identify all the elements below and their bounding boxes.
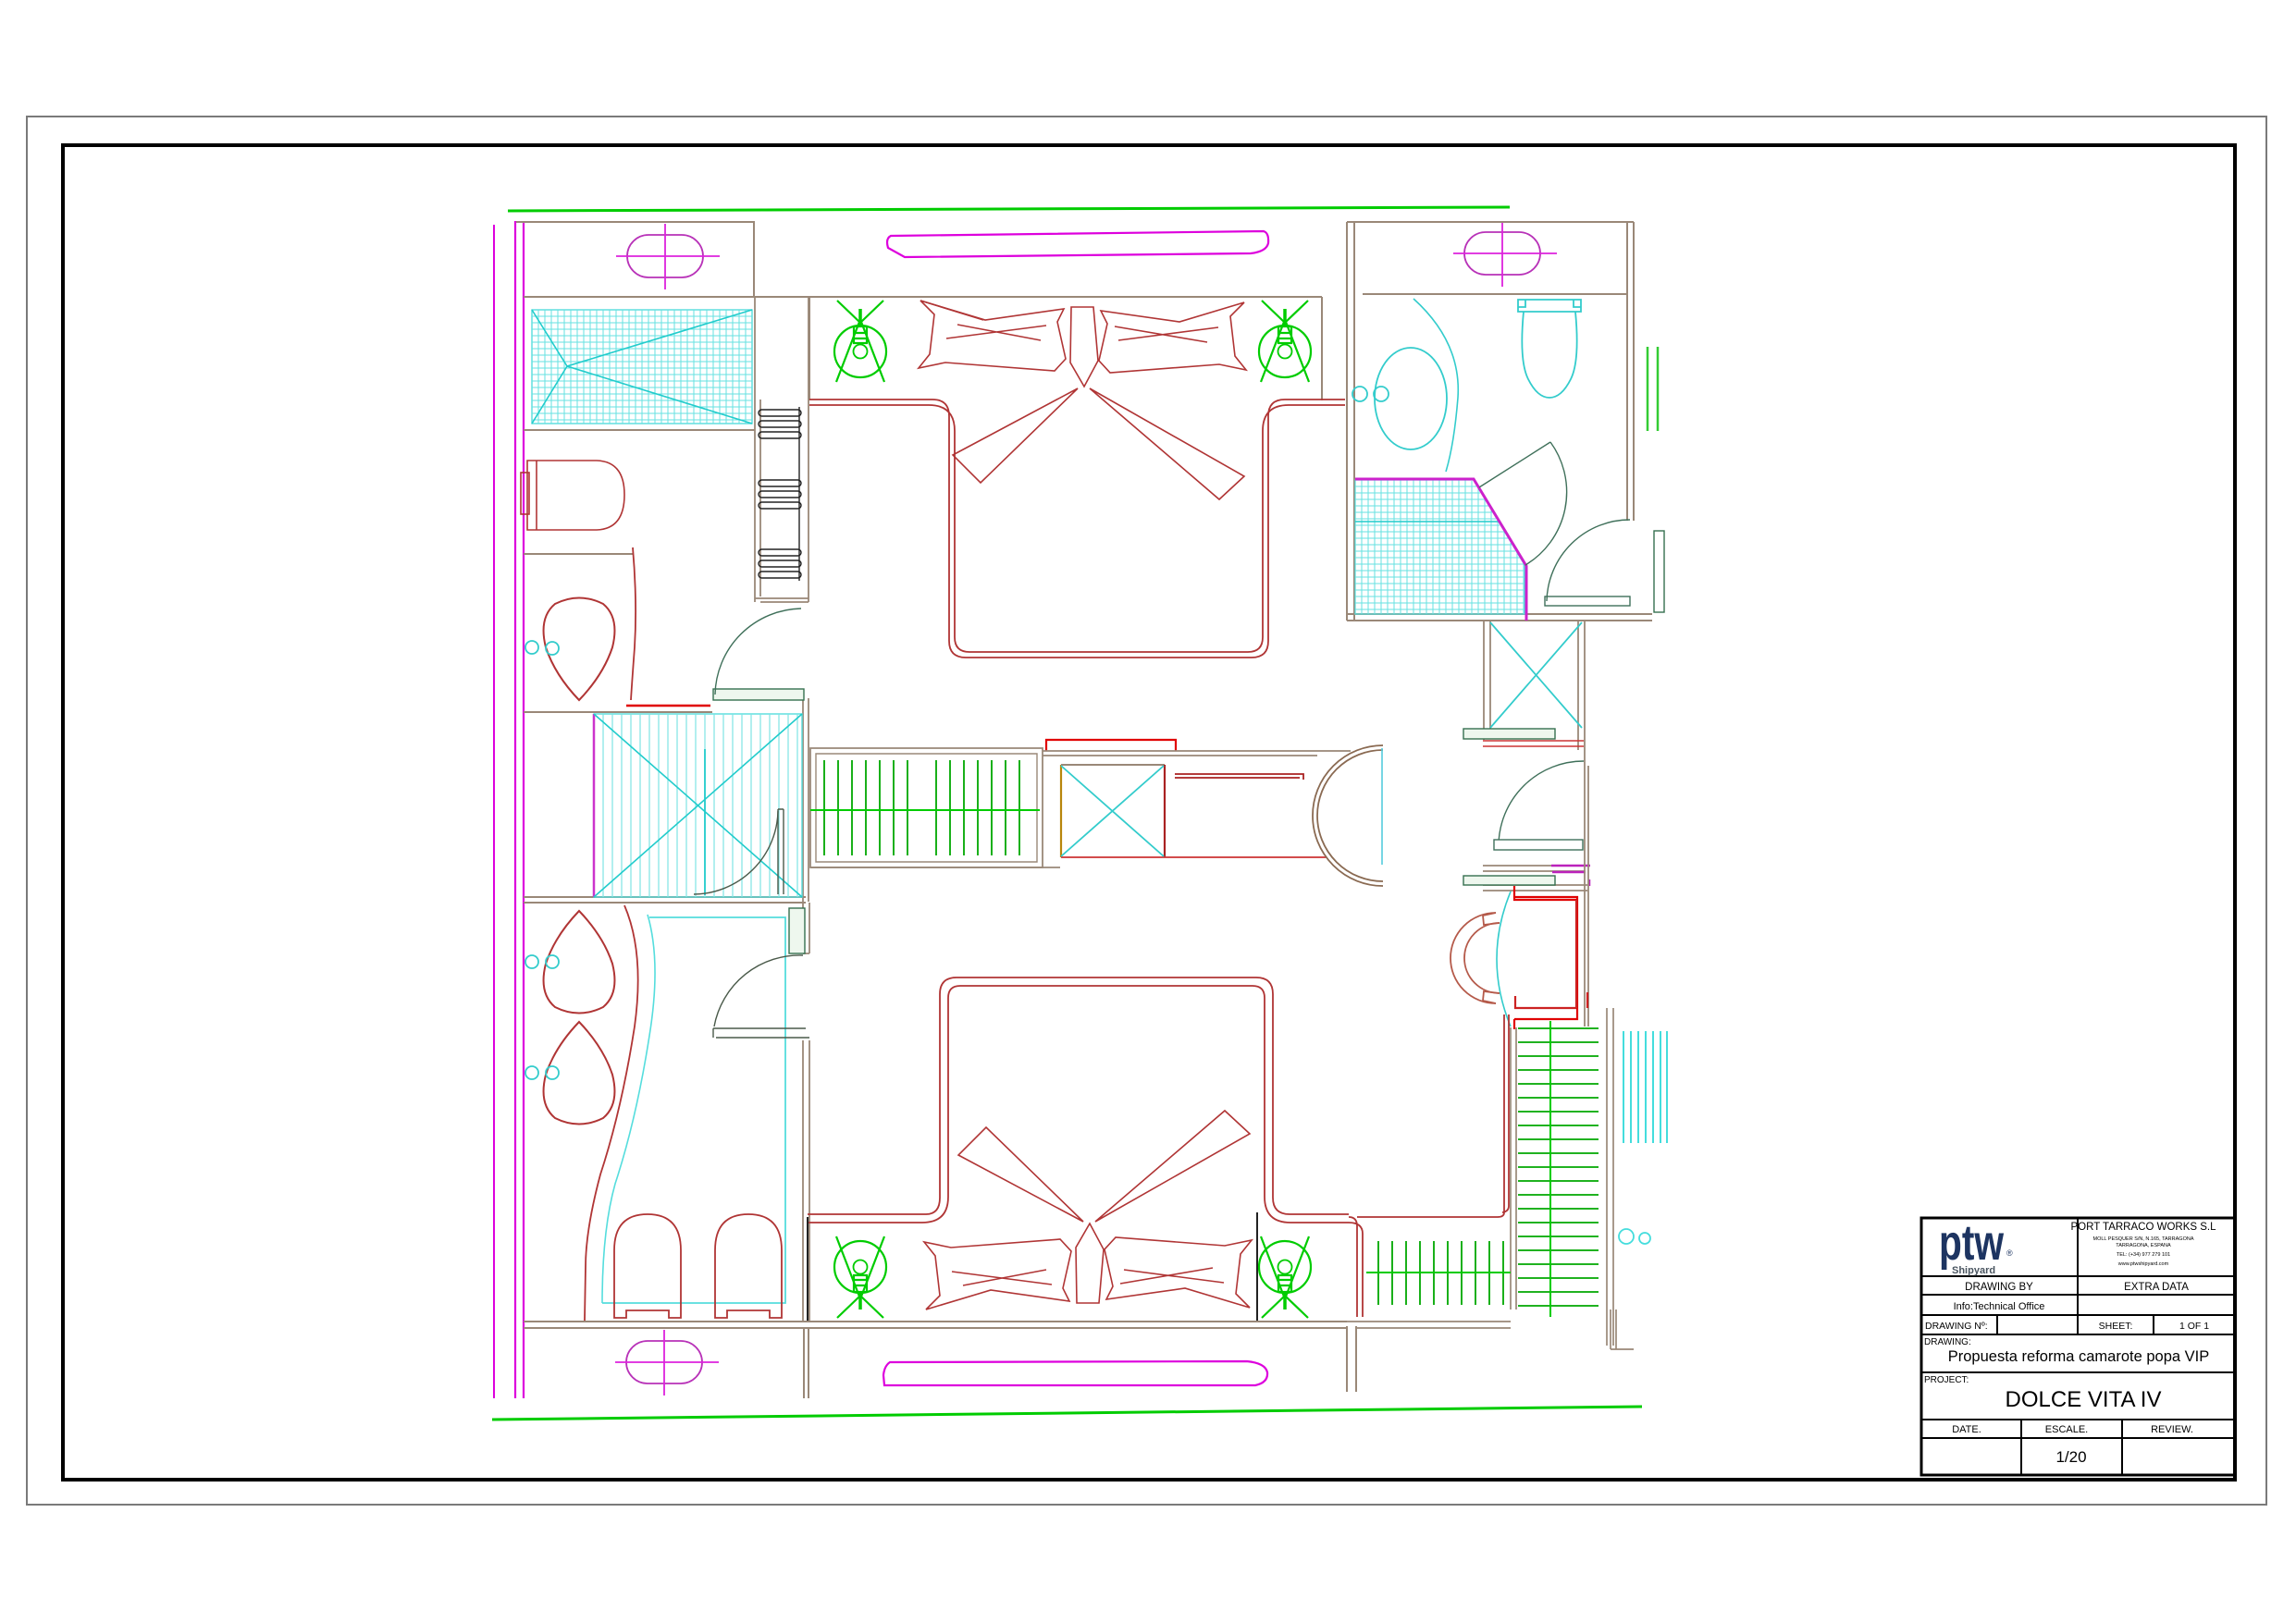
svg-text:Propuesta reforma camarote pop: Propuesta reforma camarote popa VIP [1948, 1348, 2209, 1365]
svg-text:TARRAGONA, ESPANA: TARRAGONA, ESPANA [2116, 1243, 2171, 1248]
svg-text:1/20: 1/20 [2055, 1448, 2086, 1466]
svg-text:Shipyard: Shipyard [1952, 1265, 1995, 1276]
svg-text:1 OF 1: 1 OF 1 [2179, 1321, 2209, 1332]
svg-text:REVIEW.: REVIEW. [2151, 1424, 2193, 1435]
svg-text:MOLL PESQUER S/N, N.165, TARRA: MOLL PESQUER S/N, N.165, TARRAGONA [2092, 1236, 2193, 1242]
svg-text:ESCALE.: ESCALE. [2045, 1424, 2088, 1435]
svg-text:www.ptwshipyard.com: www.ptwshipyard.com [2117, 1261, 2169, 1267]
svg-text:DRAWING BY: DRAWING BY [1965, 1282, 2033, 1293]
svg-text:DATE.: DATE. [1952, 1424, 1981, 1435]
svg-text:PORT TARRACO WORKS S.L: PORT TARRACO WORKS S.L [2071, 1222, 2217, 1233]
svg-text:DRAWING Nº:: DRAWING Nº: [1925, 1321, 1988, 1332]
svg-text:EXTRA DATA: EXTRA DATA [2124, 1282, 2189, 1293]
svg-text:®: ® [2006, 1248, 2013, 1258]
svg-text:SHEET:: SHEET: [2099, 1321, 2133, 1332]
svg-text:DOLCE VITA IV: DOLCE VITA IV [2006, 1387, 2162, 1412]
svg-text:Info:Technical Office: Info:Technical Office [1954, 1301, 2045, 1312]
svg-text:PROJECT:: PROJECT: [1924, 1375, 1969, 1385]
svg-text:TEL: (+34) 977 279 101: TEL: (+34) 977 279 101 [2117, 1252, 2170, 1258]
svg-text:DRAWING:: DRAWING: [1924, 1337, 1971, 1347]
svg-text:ptw: ptw [1939, 1215, 2005, 1271]
